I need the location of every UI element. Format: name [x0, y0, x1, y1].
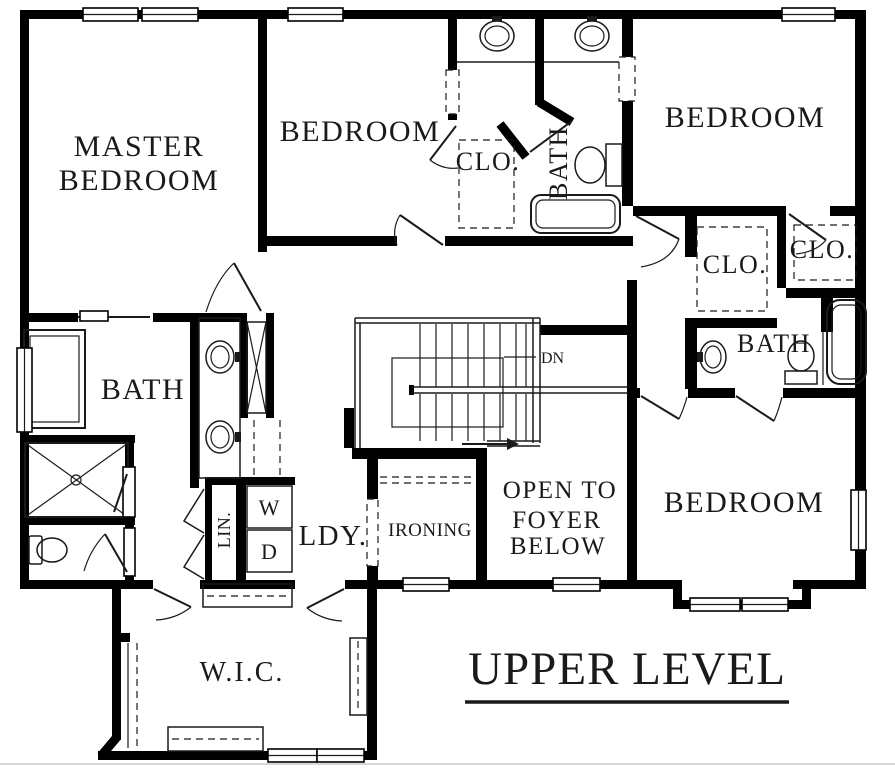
- door-icon: [154, 589, 191, 620]
- window-icon: [83, 8, 138, 21]
- window-icon: [690, 598, 740, 611]
- stair-treads-upper: [420, 324, 526, 387]
- bath-right-label: BATH: [737, 329, 811, 358]
- window-icon: [782, 8, 835, 21]
- dryer-label: D: [261, 539, 277, 564]
- closet-inner-label: CLO.: [703, 250, 768, 279]
- stairs: [355, 318, 628, 450]
- bedroom-bottom-label: BEDROOM: [664, 486, 825, 519]
- window-icon: [403, 578, 449, 591]
- door-icon: [641, 396, 687, 419]
- labels: MASTER BEDROOM BEDROOM BEDROOM BEDROOM C…: [59, 101, 855, 702]
- window-icon: [142, 8, 198, 21]
- open-foyer-label-line1: OPEN TO: [503, 477, 617, 504]
- shower-icon: [25, 443, 135, 517]
- door-icon: [206, 263, 261, 312]
- pocket-door-icon: [78, 311, 150, 321]
- toilet-icon: [29, 536, 67, 564]
- window-icon: [851, 490, 866, 550]
- bath-top-label: BATH: [544, 126, 573, 200]
- vanity-sinks-icon: [199, 318, 241, 478]
- closet-outer-label: CLO.: [790, 235, 855, 264]
- door-icon: [84, 528, 135, 576]
- door-icon: [636, 216, 679, 267]
- wic-label: W.I.C.: [200, 657, 285, 688]
- window-icon: [17, 348, 32, 432]
- laundry-label: LDY.: [298, 520, 367, 552]
- scan-edge-line: [0, 763, 895, 765]
- toilet-icon: [575, 144, 622, 186]
- master-bedroom-label-line2: BEDROOM: [59, 164, 220, 197]
- linen-cabinet-icon: [247, 322, 266, 413]
- master-bedroom-label-line1: MASTER: [74, 130, 205, 163]
- ironing-label: IRONING: [388, 520, 472, 541]
- door-icon: [736, 396, 782, 421]
- open-foyer-label-line2: FOYER: [512, 507, 601, 534]
- bath-master-label: BATH: [101, 373, 185, 406]
- bathtub-icon: [24, 330, 85, 428]
- floor-plan: MASTER BEDROOM BEDROOM BEDROOM BEDROOM C…: [0, 0, 895, 768]
- bedroom-right-label: BEDROOM: [665, 101, 826, 134]
- linen-label: LIN.: [214, 512, 234, 549]
- window-icon: [288, 8, 343, 21]
- closet-top-label: CLO.: [456, 147, 521, 176]
- window-icon: [742, 598, 788, 611]
- sink-icon: [697, 341, 726, 373]
- stair-treads-lower: [420, 394, 526, 441]
- page-title: UPPER LEVEL: [468, 643, 786, 695]
- floor-plan-page: MASTER BEDROOM BEDROOM BEDROOM BEDROOM C…: [0, 0, 895, 768]
- window-icon: [268, 749, 317, 762]
- door-icon: [395, 215, 443, 245]
- stairs-dn-label: DN: [541, 350, 565, 367]
- bedroom-top-label: BEDROOM: [280, 115, 441, 148]
- door-icon: [307, 589, 344, 621]
- washer-label: W: [259, 495, 280, 520]
- window-icon: [553, 578, 600, 591]
- bifold-door-icon: [184, 489, 204, 579]
- window-icon: [317, 749, 364, 762]
- open-foyer-label-line3: BELOW: [510, 533, 606, 560]
